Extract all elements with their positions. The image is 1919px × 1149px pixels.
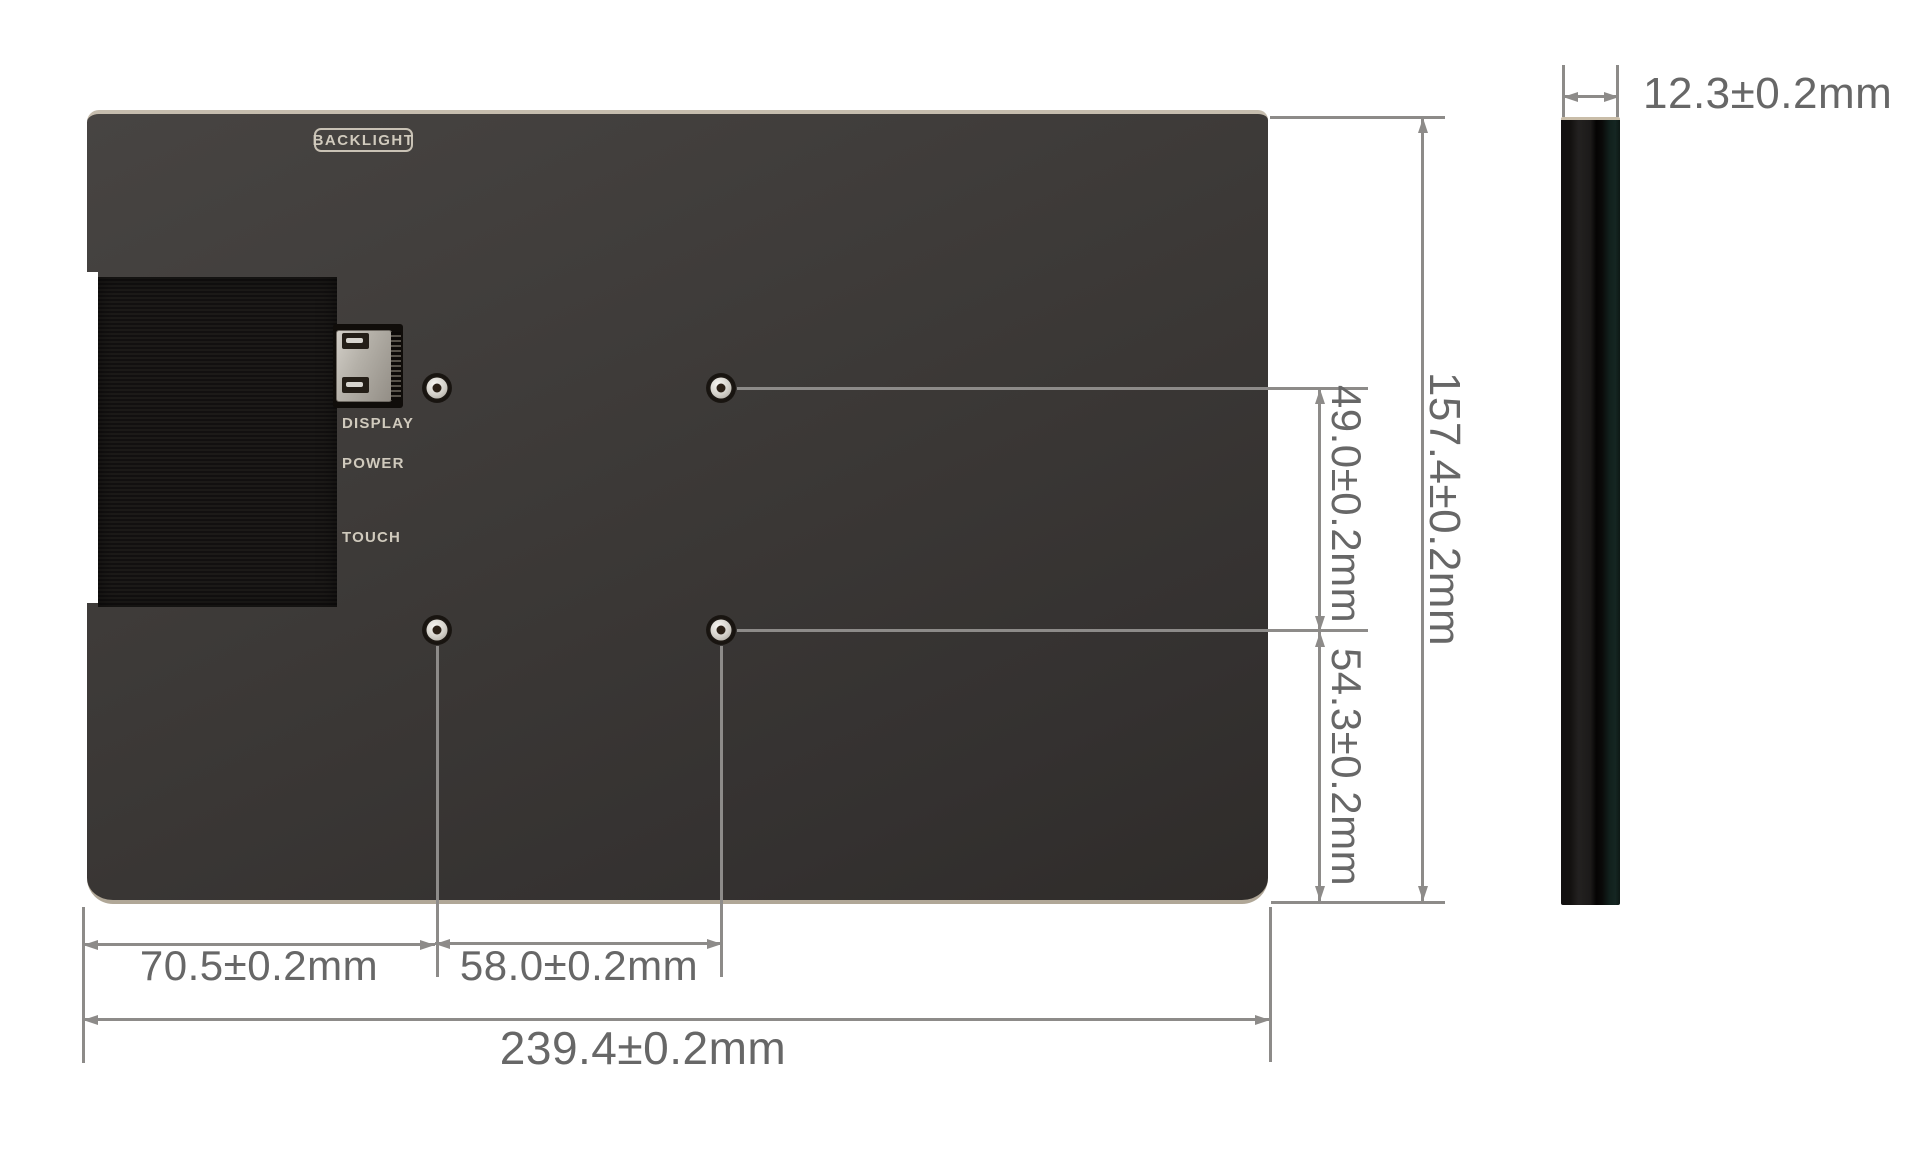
- screw-hole-top-right: [706, 373, 736, 403]
- display-side-view: [1561, 117, 1620, 905]
- dim-line-hole-row-to-bottom: [1318, 632, 1321, 901]
- hdmi-connector-slot-top: [342, 333, 369, 349]
- hdmi-connector: [333, 324, 403, 408]
- dim-label-hole-row-to-bottom: 54.3±0.2mm: [1322, 648, 1370, 886]
- hdmi-connector-slot-bottom: [342, 377, 369, 393]
- dim-label-overall-width: 239.4±0.2mm: [500, 1021, 786, 1075]
- extension-line-bottom-left-hole: [436, 646, 439, 977]
- backlight-badge: BACKLIGHT: [314, 128, 413, 152]
- backlight-badge-label: BACKLIGHT: [313, 132, 415, 149]
- extension-line-top-hole-row: [737, 387, 1368, 390]
- display-dimension-diagram: BACKLIGHT DISPLAY POWER TOUCH 70.5±0.2mm…: [0, 0, 1919, 1149]
- power-port-label: POWER: [342, 455, 405, 472]
- dim-label-thickness: 12.3±0.2mm: [1643, 69, 1892, 119]
- extension-line-panel-bottom-edge: [1271, 901, 1445, 904]
- dim-label-overall-height: 157.4±0.2mm: [1419, 372, 1469, 646]
- display-port-label: DISPLAY: [342, 415, 414, 432]
- dim-label-hole-spacing-y: 49.0±0.2mm: [1322, 385, 1370, 623]
- touch-port-label: TOUCH: [342, 529, 401, 546]
- extension-line-panel-right-edge: [1269, 907, 1272, 1062]
- hdmi-connector-pins: [391, 332, 401, 400]
- panel-left-notch: [79, 272, 98, 603]
- screw-hole-top-left: [422, 373, 452, 403]
- dim-label-hole-left-offset: 70.5±0.2mm: [140, 942, 378, 990]
- extension-line-bottom-hole-row: [737, 629, 1368, 632]
- dim-line-hole-spacing-y: [1318, 389, 1321, 631]
- extension-line-bottom-right-hole: [720, 646, 723, 977]
- screw-hole-bottom-right: [706, 615, 736, 645]
- screw-hole-bottom-left: [422, 615, 452, 645]
- extension-line-panel-left-edge: [82, 907, 85, 1063]
- dim-line-thickness: [1563, 95, 1619, 98]
- flex-ribbon-cable-area: [98, 277, 337, 607]
- dim-label-hole-spacing-x: 58.0±0.2mm: [460, 942, 698, 990]
